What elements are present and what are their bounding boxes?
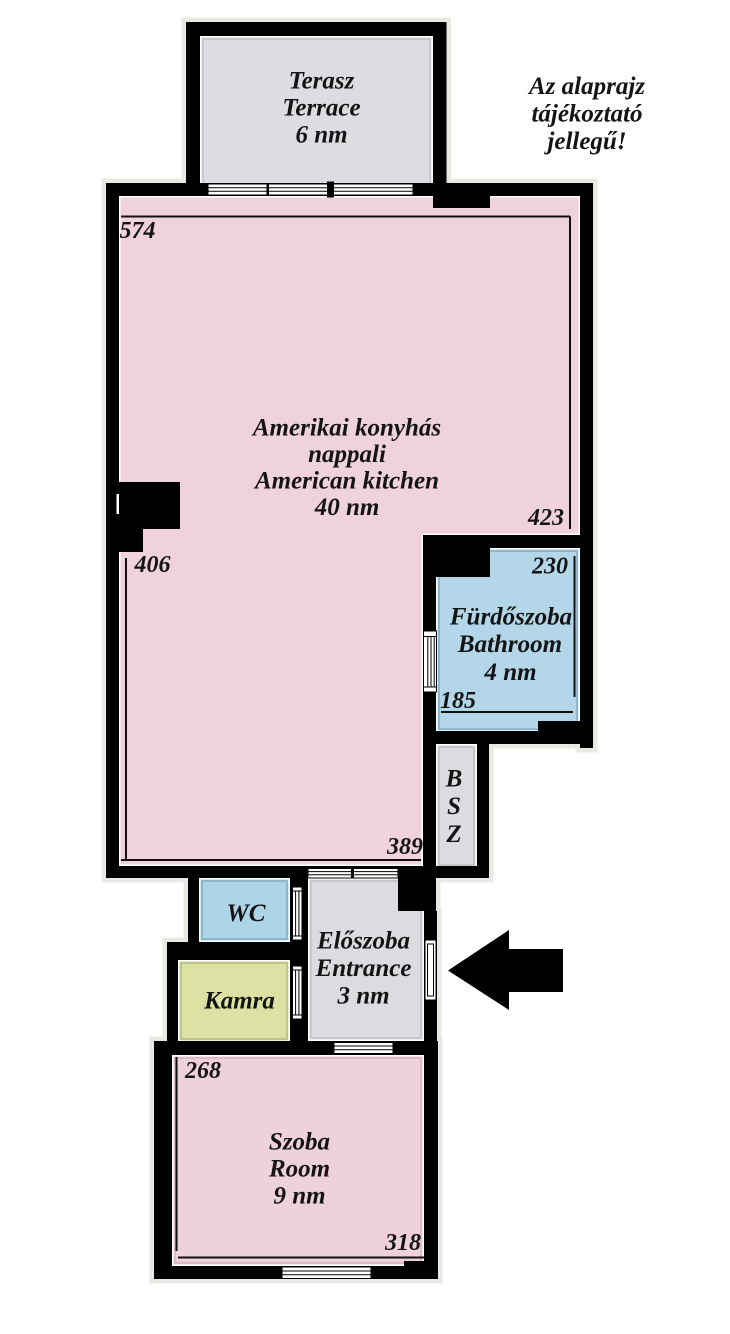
svg-text:389: 389	[386, 834, 423, 860]
svg-text:nappali: nappali	[308, 441, 386, 468]
svg-text:268: 268	[184, 1058, 221, 1084]
svg-text:Room: Room	[268, 1156, 330, 1183]
svg-text:3 nm: 3 nm	[336, 983, 389, 1010]
svg-text:Terasz: Terasz	[289, 68, 355, 95]
svg-text:Terrace: Terrace	[282, 95, 360, 122]
svg-text:6 nm: 6 nm	[295, 122, 347, 149]
svg-text:American kitchen: American kitchen	[253, 468, 439, 495]
svg-text:9 nm: 9 nm	[273, 1183, 325, 1210]
svg-text:tájékoztató: tájékoztató	[531, 101, 642, 128]
svg-text:230: 230	[531, 554, 568, 580]
svg-text:423: 423	[527, 505, 564, 531]
svg-text:185: 185	[440, 688, 476, 714]
svg-text:40 nm: 40 nm	[314, 494, 380, 521]
svg-text:Szoba: Szoba	[269, 1129, 330, 1156]
svg-text:406: 406	[134, 552, 171, 578]
svg-text:jellegű!: jellegű!	[543, 128, 626, 155]
svg-text:318: 318	[384, 1230, 421, 1256]
svg-text:Előszoba: Előszoba	[316, 928, 410, 955]
svg-text:WC: WC	[227, 900, 266, 927]
svg-text:Fürdőszoba: Fürdőszoba	[449, 604, 572, 631]
svg-text:Amerikai konyhás: Amerikai konyhás	[251, 415, 441, 442]
svg-text:Entrance: Entrance	[315, 955, 412, 982]
svg-text:Az alaprajz: Az alaprajz	[527, 73, 645, 100]
svg-text:S: S	[447, 793, 461, 820]
svg-text:Z: Z	[445, 821, 461, 848]
svg-text:Kamra: Kamra	[203, 988, 275, 1015]
svg-text:4 nm: 4 nm	[483, 659, 536, 686]
svg-text:Bathroom: Bathroom	[457, 631, 562, 658]
svg-text:574: 574	[120, 218, 156, 244]
svg-text:B: B	[445, 766, 463, 793]
